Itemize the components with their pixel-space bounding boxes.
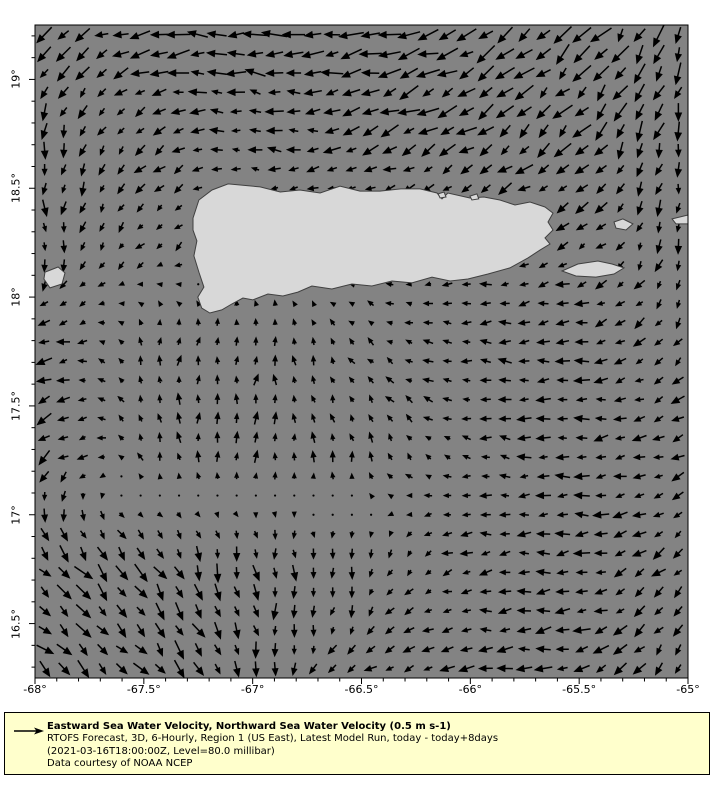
velocity-arrow <box>178 494 180 496</box>
legend-box: Eastward Sea Water Velocity, Northward S… <box>4 712 710 775</box>
velocity-arrow <box>293 474 296 479</box>
y-axis-tick-label: 18° <box>10 287 23 307</box>
x-axis-tick-label: -66° <box>459 683 482 696</box>
velocity-arrow <box>120 340 124 343</box>
legend-title: Eastward Sea Water Velocity, Northward S… <box>47 721 705 733</box>
y-axis-tick-label: 17° <box>10 505 23 525</box>
velocity-arrow <box>159 494 161 496</box>
velocity-arrow <box>120 359 124 363</box>
velocity-arrow <box>120 379 124 383</box>
velocity-arrow <box>139 283 143 286</box>
velocity-arrow <box>351 494 353 496</box>
velocity-arrow <box>236 494 238 496</box>
velocity-arrow <box>120 475 122 477</box>
velocity-arrow <box>216 494 218 496</box>
velocity-arrow <box>332 494 334 496</box>
x-axis-tick-label: -67.5° <box>127 683 161 696</box>
x-axis-tick-label: -68° <box>23 683 46 696</box>
velocity-arrow <box>140 494 142 496</box>
x-axis-tick-label: -65.5° <box>562 683 596 696</box>
velocity-arrow <box>312 514 314 516</box>
velocity-arrow <box>197 283 199 285</box>
y-axis-tick-label: 17.5° <box>10 391 23 421</box>
velocity-arrow <box>255 494 257 496</box>
velocity-arrow <box>139 513 143 517</box>
legend-run-line: (2021-03-16T18:00:00Z, Level=80.0 millib… <box>47 746 705 758</box>
x-axis-tick-label: -65° <box>676 683 699 696</box>
velocity-arrow <box>370 514 372 516</box>
velocity-arrow <box>408 436 412 439</box>
sea-area <box>35 25 688 678</box>
legend-model-line: RTOFS Forecast, 3D, 6-Hourly, Region 1 (… <box>47 733 705 745</box>
velocity-arrow <box>197 494 199 496</box>
x-axis-tick-label: -66.5° <box>345 683 379 696</box>
velocity-arrow <box>427 455 431 459</box>
x-axis-tick-label: -67° <box>241 683 264 696</box>
velocity-quiver-map <box>0 0 720 710</box>
y-axis-tick-label: 18.5° <box>10 173 23 203</box>
reference-arrow-icon <box>13 725 47 737</box>
forecast-map-page: -68°-67.5°-67°-66.5°-66°-65.5°-65°19°18.… <box>0 0 720 800</box>
velocity-arrow <box>293 494 295 496</box>
velocity-arrow <box>158 244 162 248</box>
legend-credit-line: Data courtesy of NOAA NCEP <box>47 758 705 770</box>
velocity-arrow <box>120 494 122 496</box>
velocity-arrow <box>351 514 353 516</box>
velocity-arrow <box>312 494 314 496</box>
velocity-arrow <box>274 494 276 496</box>
velocity-arrow <box>332 514 334 516</box>
y-axis-tick-label: 19° <box>10 70 23 90</box>
velocity-arrow <box>82 493 85 498</box>
y-axis-tick-label: 16.5° <box>10 609 23 639</box>
legend-text: Eastward Sea Water Velocity, Northward S… <box>47 721 705 771</box>
